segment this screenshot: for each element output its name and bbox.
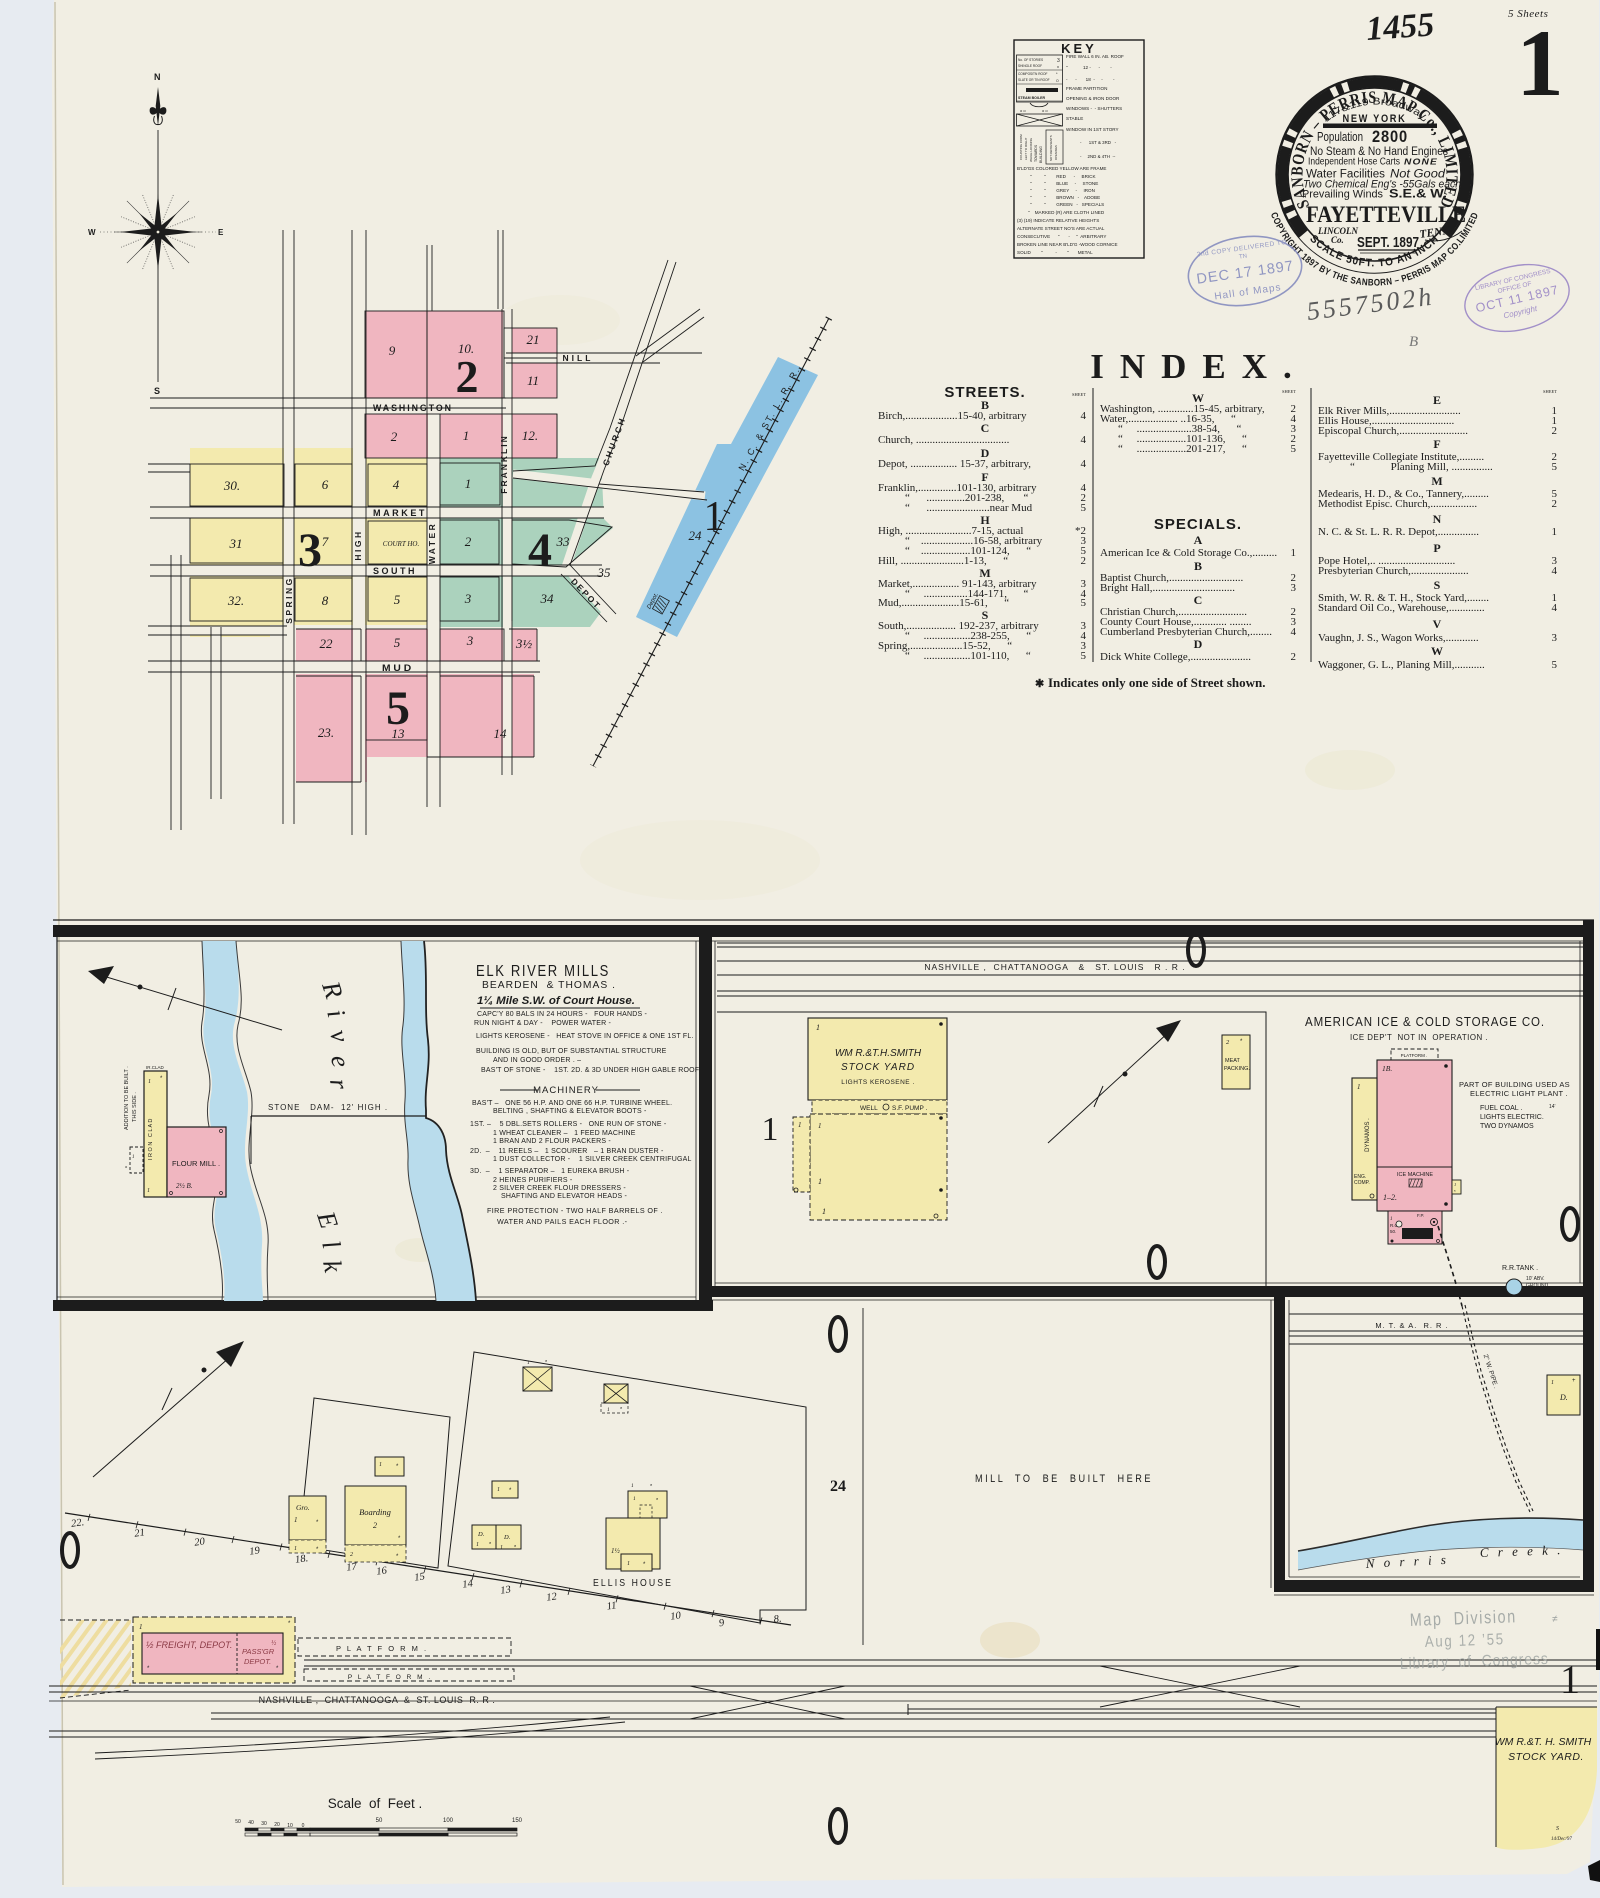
svg-text:2: 2 (1081, 555, 1087, 567)
svg-text:Co.: Co. (1331, 235, 1344, 245)
svg-text:STABLE: STABLE (1066, 116, 1083, 121)
svg-text:3½: 3½ (515, 636, 533, 651)
svg-text:BAS'T – ONE 56 H.P. AND ONE: BAS'T – ONE 56 H.P. AND ONE 66 H.P. TURB… (472, 1100, 672, 1107)
svg-text:2: 2 (1552, 425, 1558, 437)
svg-text:3: 3 (1552, 632, 1558, 644)
svg-text:Dick White College,...........: Dick White College,.....................… (1100, 651, 1251, 663)
svg-text:+: + (1572, 1378, 1576, 1384)
svg-text:32.: 32. (227, 593, 244, 608)
svg-text:WINDOW IN 1ST STORY: WINDOW IN 1ST STORY (1066, 127, 1119, 132)
svg-text:AMERICAN ICE & COLD STORAGE CO: AMERICAN ICE & COLD STORAGE CO. (1305, 1014, 1545, 1029)
svg-text:22: 22 (320, 636, 334, 651)
svg-text:13: 13 (392, 726, 406, 741)
svg-text:BAS'T OF STONE - 1ST. 2D. &: BAS'T OF STONE - 1ST. 2D. & 3D UNDER HIG… (481, 1067, 699, 1074)
svg-text:N. C. & St. L. R. R. Depot,...: N. C. & St. L. R. R. Depot,.............… (1318, 526, 1479, 538)
svg-text:S: S (1556, 1826, 1559, 1832)
svg-text:NASHVILLE , CHATTANOOGA &: NASHVILLE , CHATTANOOGA & ST. LOUIS R . … (924, 962, 1185, 972)
svg-text:WINDOWS - - SHUTTERS: WINDOWS - - SHUTTERS (1066, 106, 1122, 111)
svg-text:WHILE LOOKING: WHILE LOOKING (1029, 137, 1033, 162)
svg-text:✱: ✱ (1035, 678, 1044, 690)
svg-text:TWO DYNAMOS: TWO DYNAMOS (1480, 1123, 1534, 1130)
svg-text:1455: 1455 (1365, 6, 1435, 48)
svg-text:50.: 50. (1390, 1229, 1396, 1234)
svg-text:≠: ≠ (1552, 1614, 1558, 1625)
svg-text:COMP.: COMP. (1354, 1180, 1370, 1186)
svg-text:V: V (1433, 617, 1442, 631)
svg-text:BUILDING IS OLD, BUT OF SUBSTA: BUILDING IS OLD, BUT OF SUBSTANTIAL STRU… (476, 1048, 667, 1055)
svg-text:1: 1 (822, 1207, 826, 1216)
svg-text:Mud,.....................15-61: Mud,.....................15-61, “ (878, 597, 1009, 609)
svg-text:" " GREEN -: " " GREEN - SPECIALS (1030, 202, 1104, 207)
svg-text:1: 1 (762, 1111, 779, 1148)
svg-text:Methodist Episc. Church,......: Methodist Episc. Church,................… (1318, 498, 1477, 510)
svg-text:4: 4 (1081, 434, 1087, 446)
svg-text:Map Division: Map Division (1409, 1606, 1517, 1630)
svg-text:SHEET: SHEET (1072, 392, 1086, 397)
svg-text:" MARKED (R) ARE CLOTH LINE: " MARKED (R) ARE CLOTH LINED (1028, 210, 1105, 215)
svg-text:BELTING , SHAFTING & ELEVATOR: BELTING , SHAFTING & ELEVATOR BOOTS - (493, 1108, 647, 1115)
svg-text:1: 1 (818, 1177, 822, 1186)
svg-text:14: 14 (494, 726, 508, 741)
svg-text:BEARDEN & THOMAS .: BEARDEN & THOMAS . (482, 980, 616, 991)
svg-text:S: S (1434, 578, 1441, 592)
svg-text:- - 18 - -: - - 18 - - - (1066, 77, 1115, 82)
svg-text:24: 24 (830, 1478, 846, 1495)
svg-text:NILL: NILL (563, 353, 594, 363)
svg-text:WM R.&T. H. SMITH: WM R.&T. H. SMITH (1495, 1736, 1592, 1748)
svg-text:5: 5 (394, 592, 401, 607)
svg-text:1: 1 (294, 1516, 298, 1524)
svg-text:SPRING: SPRING (284, 576, 294, 624)
svg-text:FRAME PARTITION: FRAME PARTITION (1066, 86, 1107, 91)
svg-text:21: 21 (134, 1527, 146, 1539)
svg-text:FLOUR MILL .: FLOUR MILL . (172, 1159, 220, 1168)
svg-text:Birch,...................15-40: Birch,...................15-40, arbitrar… (878, 410, 1027, 422)
svg-text:11: 11 (606, 1600, 617, 1612)
svg-text:NASHVILLE , CHATTANOOGA & S: NASHVILLE , CHATTANOOGA & ST. LOUIS R. R… (259, 1695, 496, 1705)
svg-text:A: A (1194, 533, 1203, 547)
svg-text:N: N (1433, 512, 1442, 526)
svg-text:1ST. – 5 DBL.SETS ROLLERS -: 1ST. – 5 DBL.SETS ROLLERS - ONE RUN OF S… (470, 1121, 667, 1128)
svg-text:o o: o o (1042, 108, 1048, 113)
svg-text:Waggoner, G. L., Planing Mill,: Waggoner, G. L., Planing Mill,..........… (1318, 659, 1485, 671)
svg-text:1B.: 1B. (1382, 1064, 1392, 1073)
svg-text:D.: D. (503, 1534, 511, 1541)
svg-text:7: 7 (322, 534, 329, 549)
svg-text:1: 1 (147, 1188, 150, 1194)
svg-text:PLATFORM .: PLATFORM . (1401, 1053, 1428, 1058)
svg-text:1: 1 (1357, 1083, 1361, 1091)
svg-text:2: 2 (1291, 651, 1297, 663)
svg-text:3D. – 1 SEPARATOR – 1 EU: 3D. – 1 SEPARATOR – 1 EUREKA BRUSH - (470, 1168, 630, 1175)
svg-text:o o: o o (1020, 108, 1026, 113)
svg-text:Bright Hall,..................: Bright Hall,............................… (1100, 582, 1235, 594)
svg-text:10' ABV.: 10' ABV. (1526, 1276, 1545, 1282)
svg-text:FRANKLIN: FRANKLIN (499, 434, 509, 493)
svg-text:21: 21 (527, 332, 540, 347)
svg-text:1: 1 (633, 1496, 636, 1502)
svg-text:SHEET: SHEET (1282, 389, 1296, 394)
svg-text:“ ..................201-21: “ ..................201-217, “ (1118, 443, 1247, 455)
svg-text:E: E (218, 228, 224, 237)
svg-text:9: 9 (389, 343, 396, 358)
svg-text:SHEET: SHEET (1543, 389, 1557, 394)
svg-text:2: 2 (465, 534, 472, 549)
svg-text:BROKEN LINE NEAR B'LD'G -WOOD: BROKEN LINE NEAR B'LD'G -WOOD CORNICE (1017, 242, 1118, 247)
svg-text:18.: 18. (294, 1553, 309, 1566)
svg-text:AND IN GOOD ORDER . –: AND IN GOOD ORDER . – (493, 1057, 581, 1064)
svg-text:STONE DAM- 12' HIGH .: STONE DAM- 12' HIGH . (268, 1103, 388, 1112)
svg-text:Boarding: Boarding (359, 1507, 391, 1517)
svg-text:Population: Population (1317, 130, 1363, 144)
svg-text:C: C (981, 421, 990, 435)
svg-text:3: 3 (1291, 582, 1297, 594)
svg-text:2: 2 (456, 351, 479, 402)
svg-text:2: 2 (1552, 498, 1558, 510)
svg-text:1–2.: 1–2. (1383, 1193, 1397, 1202)
svg-text:Cumberland Presbyterian Church: Cumberland Presbyterian Church,........ (1100, 626, 1272, 638)
svg-text:4: 4 (1081, 458, 1087, 470)
svg-text:1: 1 (1516, 10, 1564, 116)
svg-text:50: 50 (235, 1819, 241, 1825)
svg-text:22.: 22. (70, 1517, 85, 1530)
svg-text:SHAFTING AND ELEVATOR HEADS -: SHAFTING AND ELEVATOR HEADS - (501, 1193, 627, 1200)
svg-text:SOUTH: SOUTH (373, 566, 417, 576)
svg-text:30: 30 (261, 1821, 267, 1827)
svg-text:THIS SIDE .: THIS SIDE . (132, 1092, 138, 1122)
svg-text:C r e e k .: C r e e k . (1480, 1542, 1564, 1560)
svg-text:150: 150 (512, 1818, 523, 1824)
svg-text:1 BRAN AND 2 FLOUR PACKERS -: 1 BRAN AND 2 FLOUR PACKERS - (493, 1138, 611, 1145)
svg-text:WM R.&T.H.SMITH: WM R.&T.H.SMITH (835, 1048, 922, 1059)
svg-text:1: 1 (379, 1462, 382, 1468)
svg-text:24: 24 (689, 528, 703, 543)
svg-text:4: 4 (393, 477, 400, 492)
svg-text:2 SILVER CREEK FLOUR DRESSERS: 2 SILVER CREEK FLOUR DRESSERS - (493, 1185, 626, 1192)
svg-text:1: 1 (527, 1360, 530, 1366)
svg-text:SOLID " -: SOLID " - " METAL (1017, 250, 1093, 255)
svg-text:IR.CLAD: IR.CLAD (146, 1065, 165, 1070)
svg-text:LIGHTS ELECTRIC.: LIGHTS ELECTRIC. (1480, 1114, 1544, 1121)
svg-text:1½: 1½ (611, 1547, 621, 1555)
svg-text:15: 15 (414, 1571, 426, 1583)
svg-text:5: 5 (1291, 443, 1297, 455)
svg-text:1: 1 (465, 476, 472, 491)
svg-text:13: 13 (500, 1584, 512, 1596)
svg-text:ADDITION TO BE BUILT .: ADDITION TO BE BUILT . (124, 1066, 130, 1130)
svg-text:1: 1 (497, 1487, 500, 1493)
svg-text:TOWARDS: TOWARDS (1034, 144, 1038, 162)
svg-text:1: 1 (476, 1542, 479, 1548)
svg-text:BUILDING: BUILDING (1039, 146, 1043, 163)
svg-text:DYNAMOS .: DYNAMOS . (1365, 1118, 1371, 1152)
svg-text:1: 1 (1291, 547, 1297, 559)
svg-text:SPECIALS.: SPECIALS. (1154, 516, 1242, 533)
svg-text:LIGHTS KEROSENE - HEAT STOVE: LIGHTS KEROSENE - HEAT STOVE IN OFFICE &… (476, 1033, 694, 1040)
svg-text:5: 5 (1081, 502, 1087, 514)
svg-text:1: 1 (500, 1545, 503, 1551)
svg-text:SLATE OR TIN ROOF: SLATE OR TIN ROOF (1018, 78, 1050, 82)
svg-text:6: 6 (322, 477, 329, 492)
svg-text:STEAM BOILER: STEAM BOILER (1018, 96, 1046, 100)
svg-text:ICE DEP'T NOT IN OPERATION .: ICE DEP'T NOT IN OPERATION . (1350, 1033, 1488, 1042)
svg-text:SEPT. 1897: SEPT. 1897 (1357, 235, 1419, 251)
svg-text:Independent Hose Carts: Independent Hose Carts (1308, 157, 1400, 168)
svg-text:" " BROWN -: " " BROWN - ADOBE (1030, 195, 1100, 200)
svg-text:33: 33 (556, 534, 571, 549)
svg-text:3: 3 (298, 524, 322, 577)
svg-text:1: 1 (798, 1121, 802, 1129)
svg-text:14': 14' (1549, 1104, 1556, 1110)
svg-text:Prevailing Winds: Prevailing Winds (1302, 189, 1383, 201)
svg-text:INDEX.: INDEX. (1090, 347, 1308, 386)
svg-text:FIRE WALL 6 IN. AB. ROOF: FIRE WALL 6 IN. AB. ROOF (1066, 54, 1124, 59)
svg-text:½ FREIGHT, DEPOT.: ½ FREIGHT, DEPOT. (146, 1640, 232, 1650)
svg-text:1¼ Mile S.W. of Court House.: 1¼ Mile S.W. of Court House. (477, 995, 635, 1007)
svg-text:1 DUST COLLECTOR - 1 SILVER: 1 DUST COLLECTOR - 1 SILVER CREEK CENTRI… (493, 1156, 692, 1163)
svg-text:S: S (154, 386, 160, 396)
svg-text:20: 20 (274, 1822, 280, 1828)
svg-text:No. OF STORIES: No. OF STORIES (1018, 58, 1043, 62)
svg-text:14/Dec/97: 14/Dec/97 (1551, 1837, 1572, 1842)
svg-text:D: D (1194, 637, 1203, 651)
svg-text:3: 3 (464, 591, 472, 606)
svg-text:1: 1 (816, 1023, 820, 1032)
svg-text:Gro.: Gro. (296, 1503, 310, 1512)
svg-text:COURT HO.: COURT HO. (383, 540, 420, 548)
svg-text:40: 40 (248, 1820, 254, 1826)
svg-text:LIGHTS KEROSENE .: LIGHTS KEROSENE . (841, 1079, 915, 1086)
svg-text:WATER AND PAILS EACH FLOOR .-: WATER AND PAILS EACH FLOOR .- (497, 1217, 628, 1226)
svg-text:WASHINGTON: WASHINGTON (373, 403, 453, 413)
svg-text:COMPOSITN ROOF: COMPOSITN ROOF (1018, 72, 1047, 76)
svg-text:W: W (1431, 644, 1443, 658)
svg-text:MILL TO BE BUILT HERE: MILL TO BE BUILT HERE (975, 1473, 1153, 1485)
svg-text:1: 1 (1551, 1380, 1554, 1386)
svg-text:12.: 12. (522, 428, 538, 443)
svg-text:Scale of Feet .: Scale of Feet . (328, 1796, 423, 1811)
svg-text:" 12 - -: " 12 - - - (1066, 65, 1112, 70)
svg-text:4: 4 (1552, 565, 1558, 577)
svg-text:C: C (1194, 593, 1203, 607)
svg-text:1: 1 (818, 1122, 822, 1130)
svg-text:" " GREY -: " " GREY - IRON (1030, 188, 1095, 193)
svg-text:WATER: WATER (427, 522, 437, 565)
svg-text:MEAT: MEAT (1225, 1058, 1241, 1064)
svg-text:OPENINGS: OPENINGS (1054, 145, 1058, 160)
svg-text:30.: 30. (223, 478, 240, 493)
svg-text:F.P.: F.P. (1417, 1213, 1424, 1218)
svg-text:M: M (1431, 474, 1442, 488)
svg-text:Vaughn, J. S., Wagon Works,...: Vaughn, J. S., Wagon Works,............ (1318, 632, 1479, 644)
svg-text:3: 3 (466, 633, 474, 648)
svg-text:1: 1 (148, 1079, 151, 1085)
svg-text:“ .......................: “ .......................near Mud (905, 502, 1033, 514)
svg-text:FIRE PROTECTION - TWO HALF BAR: FIRE PROTECTION - TWO HALF BARRELS OF . (487, 1206, 663, 1215)
svg-text:½: ½ (271, 1639, 277, 1647)
svg-text:Depot, ................. 15-37: Depot, ................. 15-37, arbitrar… (878, 458, 1031, 470)
svg-text:1: 1 (1560, 1657, 1580, 1702)
svg-text:NOT REPRESENTS: NOT REPRESENTS (1049, 135, 1053, 161)
svg-text:P: P (1433, 541, 1440, 555)
svg-text:SHINGLE ROOF: SHINGLE ROOF (1018, 64, 1042, 68)
svg-text:- 1ST & 3RD -: - 1ST & 3RD - (1080, 140, 1117, 145)
svg-text:W: W (88, 228, 96, 237)
svg-text:STOCK YARD.: STOCK YARD. (1508, 1751, 1584, 1763)
svg-text:Church, ......................: Church, ................................… (878, 434, 1010, 446)
svg-text:ELECTRIC LIGHT PLANT .: ELECTRIC LIGHT PLANT . (1470, 1089, 1568, 1098)
svg-text:RUN NIGHT & DAY - POWER WAT: RUN NIGHT & DAY - POWER WATER - (474, 1020, 612, 1027)
svg-text:- 2ND & 4TH --: - 2ND & 4TH -- (1080, 154, 1116, 159)
svg-text:MACHINERY: MACHINERY (533, 1085, 599, 1096)
svg-text:S.F. PUMP .: S.F. PUMP . (892, 1105, 927, 1112)
svg-text:CAPC'Y 80 BALS IN 24 HOURS -: CAPC'Y 80 BALS IN 24 HOURS - FOUR HANDS … (477, 1011, 648, 1018)
svg-text:FUEL COAL .: FUEL COAL . (1480, 1105, 1522, 1112)
svg-text:M. T. & A. R. R .: M. T. & A. R. R . (1375, 1321, 1448, 1330)
svg-text:1: 1 (607, 1407, 610, 1413)
svg-text:2: 2 (350, 1552, 353, 1558)
svg-text:B: B (1194, 559, 1202, 573)
svg-text:8.: 8. (773, 1614, 782, 1626)
svg-text:CONSECUTIVE " -: CONSECUTIVE " - " ARBITRARY (1017, 234, 1106, 239)
svg-text:DEPOT.: DEPOT. (244, 1657, 271, 1666)
svg-text:1: 1 (139, 1623, 143, 1631)
svg-text:4: 4 (1291, 626, 1297, 638)
svg-text:" " BLUE -: " " BLUE - STONE (1030, 181, 1098, 186)
svg-text:2: 2 (373, 1521, 377, 1530)
svg-text:OPENING & IRON DOOR: OPENING & IRON DOOR (1066, 96, 1120, 101)
svg-text:2D. – 11 REELS – 1 SCOUR: 2D. – 11 REELS – 1 SCOURER – 1 BRAN DUST… (470, 1148, 664, 1155)
svg-text:D.: D. (477, 1531, 485, 1538)
svg-text:5: 5 (394, 635, 401, 650)
svg-text:8: 8 (322, 593, 329, 608)
svg-text:2 HEINES PURIFIERS -: 2 HEINES PURIFIERS - (493, 1177, 573, 1184)
svg-text:(3) (19) INDICATE RELATIVE HEI: (3) (19) INDICATE RELATIVE HEIGHTS (1017, 218, 1099, 223)
svg-text:100: 100 (443, 1818, 454, 1824)
svg-text:F: F (1433, 437, 1440, 451)
svg-text:D.: D. (1559, 1393, 1568, 1402)
svg-text:GROUND .: GROUND . (1526, 1283, 1551, 1289)
svg-text:2: 2 (391, 429, 398, 444)
svg-text:MUD: MUD (382, 663, 414, 673)
svg-text:PART OF BUILDING USED AS: PART OF BUILDING USED AS (1459, 1080, 1570, 1089)
svg-text:PACKING.: PACKING. (1224, 1066, 1250, 1072)
svg-text:American Ice & Cold Storage Co: American Ice & Cold Storage Co.,........… (1100, 547, 1277, 559)
svg-text:STOCK YARD: STOCK YARD (841, 1062, 915, 1073)
svg-text:HIGH: HIGH (353, 529, 363, 560)
svg-text:Standard Oil Co., Warehouse,..: Standard Oil Co., Warehouse,............… (1318, 602, 1485, 614)
svg-text:1: 1 (627, 1561, 630, 1567)
svg-text:1: 1 (463, 428, 470, 443)
svg-text:FAYETTEVILLE: FAYETTEVILLE (1306, 202, 1466, 228)
svg-text:1 WHEAT CLEANER – 1 FEED MAC: 1 WHEAT CLEANER – 1 FEED MACHINE (493, 1130, 636, 1137)
svg-text:TN: TN (1239, 254, 1248, 261)
svg-text:NEW YORK: NEW YORK (1343, 113, 1407, 125)
svg-text:" " RED -: " " RED - BRICK (1030, 174, 1096, 179)
svg-text:34: 34 (540, 591, 555, 606)
svg-text:35: 35 (597, 565, 612, 580)
svg-text:4: 4 (528, 524, 552, 577)
svg-text:WELL: WELL (860, 1105, 878, 1112)
svg-text:5: 5 (1081, 650, 1087, 662)
svg-text:50: 50 (376, 1818, 383, 1824)
svg-text:2½ B.: 2½ B. (176, 1182, 193, 1190)
svg-text:O: O (1056, 79, 1059, 83)
svg-text:x: x (1057, 64, 1059, 69)
svg-text:1: 1 (1390, 1217, 1393, 1222)
svg-text:R.R.TANK .: R.R.TANK . (1502, 1265, 1538, 1272)
svg-text:31: 31 (229, 536, 243, 551)
svg-text:“ .................101-110: “ .................101-110, “ (905, 650, 1031, 662)
svg-text:NONE: NONE (1404, 157, 1438, 167)
svg-text:P L A T F O R M .: P L A T F O R M . (336, 1644, 428, 1653)
svg-text:11: 11 (527, 373, 539, 388)
svg-text:“ Planing Mill, ..: “ Planing Mill, ............... (1350, 461, 1493, 473)
svg-text:5: 5 (1081, 597, 1087, 609)
svg-text:P L A T F O R M .: P L A T F O R M . (348, 1674, 432, 1681)
svg-text:ALTERNATE STREET NO'S ARE ACTU: ALTERNATE STREET NO'S ARE ACTUAL (1017, 226, 1105, 231)
svg-text:Presbyterian Church,..........: Presbyterian Church,....................… (1318, 565, 1469, 577)
svg-text:2800: 2800 (1372, 127, 1408, 146)
svg-text:10.: 10. (458, 341, 474, 356)
svg-text:4: 4 (1081, 410, 1087, 422)
svg-text:1: 1 (704, 494, 725, 540)
svg-text:ELLIS HOUSE: ELLIS HOUSE (593, 1577, 673, 1589)
svg-text:Indicates only one side of Str: Indicates only one side of Street shown. (1048, 675, 1266, 690)
svg-text:PASS'GR: PASS'GR (242, 1647, 275, 1656)
svg-text:1: 1 (631, 1483, 634, 1489)
svg-text:ICE MACHINE: ICE MACHINE (1397, 1172, 1433, 1178)
svg-text:5: 5 (1552, 659, 1558, 671)
svg-text:B'LD'GS COLORED YELLOW ARE FRA: B'LD'GS COLORED YELLOW ARE FRAME (1017, 166, 1106, 171)
svg-text:1: 1 (1552, 526, 1558, 538)
svg-text:4: 4 (1552, 602, 1558, 614)
svg-text:S.E.& W.: S.E.& W. (1389, 189, 1447, 201)
svg-text:1: 1 (1454, 1182, 1456, 1187)
svg-text:I R O N C L A D: I R O N C L A D (148, 1119, 154, 1160)
svg-text:N: N (154, 72, 161, 82)
svg-text:Episcopal Church,.............: Episcopal Church,.......................… (1318, 425, 1468, 437)
svg-text:COUNTING FROM: COUNTING FROM (1019, 134, 1023, 160)
svg-text:LEFT TO RIGHT: LEFT TO RIGHT (1024, 137, 1028, 160)
svg-text:Aug 12 ’55: Aug 12 ’55 (1425, 1631, 1506, 1651)
svg-text:1: 1 (132, 1155, 135, 1160)
svg-text:5: 5 (1552, 461, 1558, 473)
svg-text:23.: 23. (318, 725, 334, 740)
svg-text:*: * (1454, 1189, 1456, 1194)
svg-text:1: 1 (294, 1546, 297, 1552)
svg-text:B: B (1409, 334, 1418, 350)
svg-text:MARKET: MARKET (373, 508, 427, 518)
svg-text:ELK RIVER MILLS: ELK RIVER MILLS (476, 963, 610, 980)
